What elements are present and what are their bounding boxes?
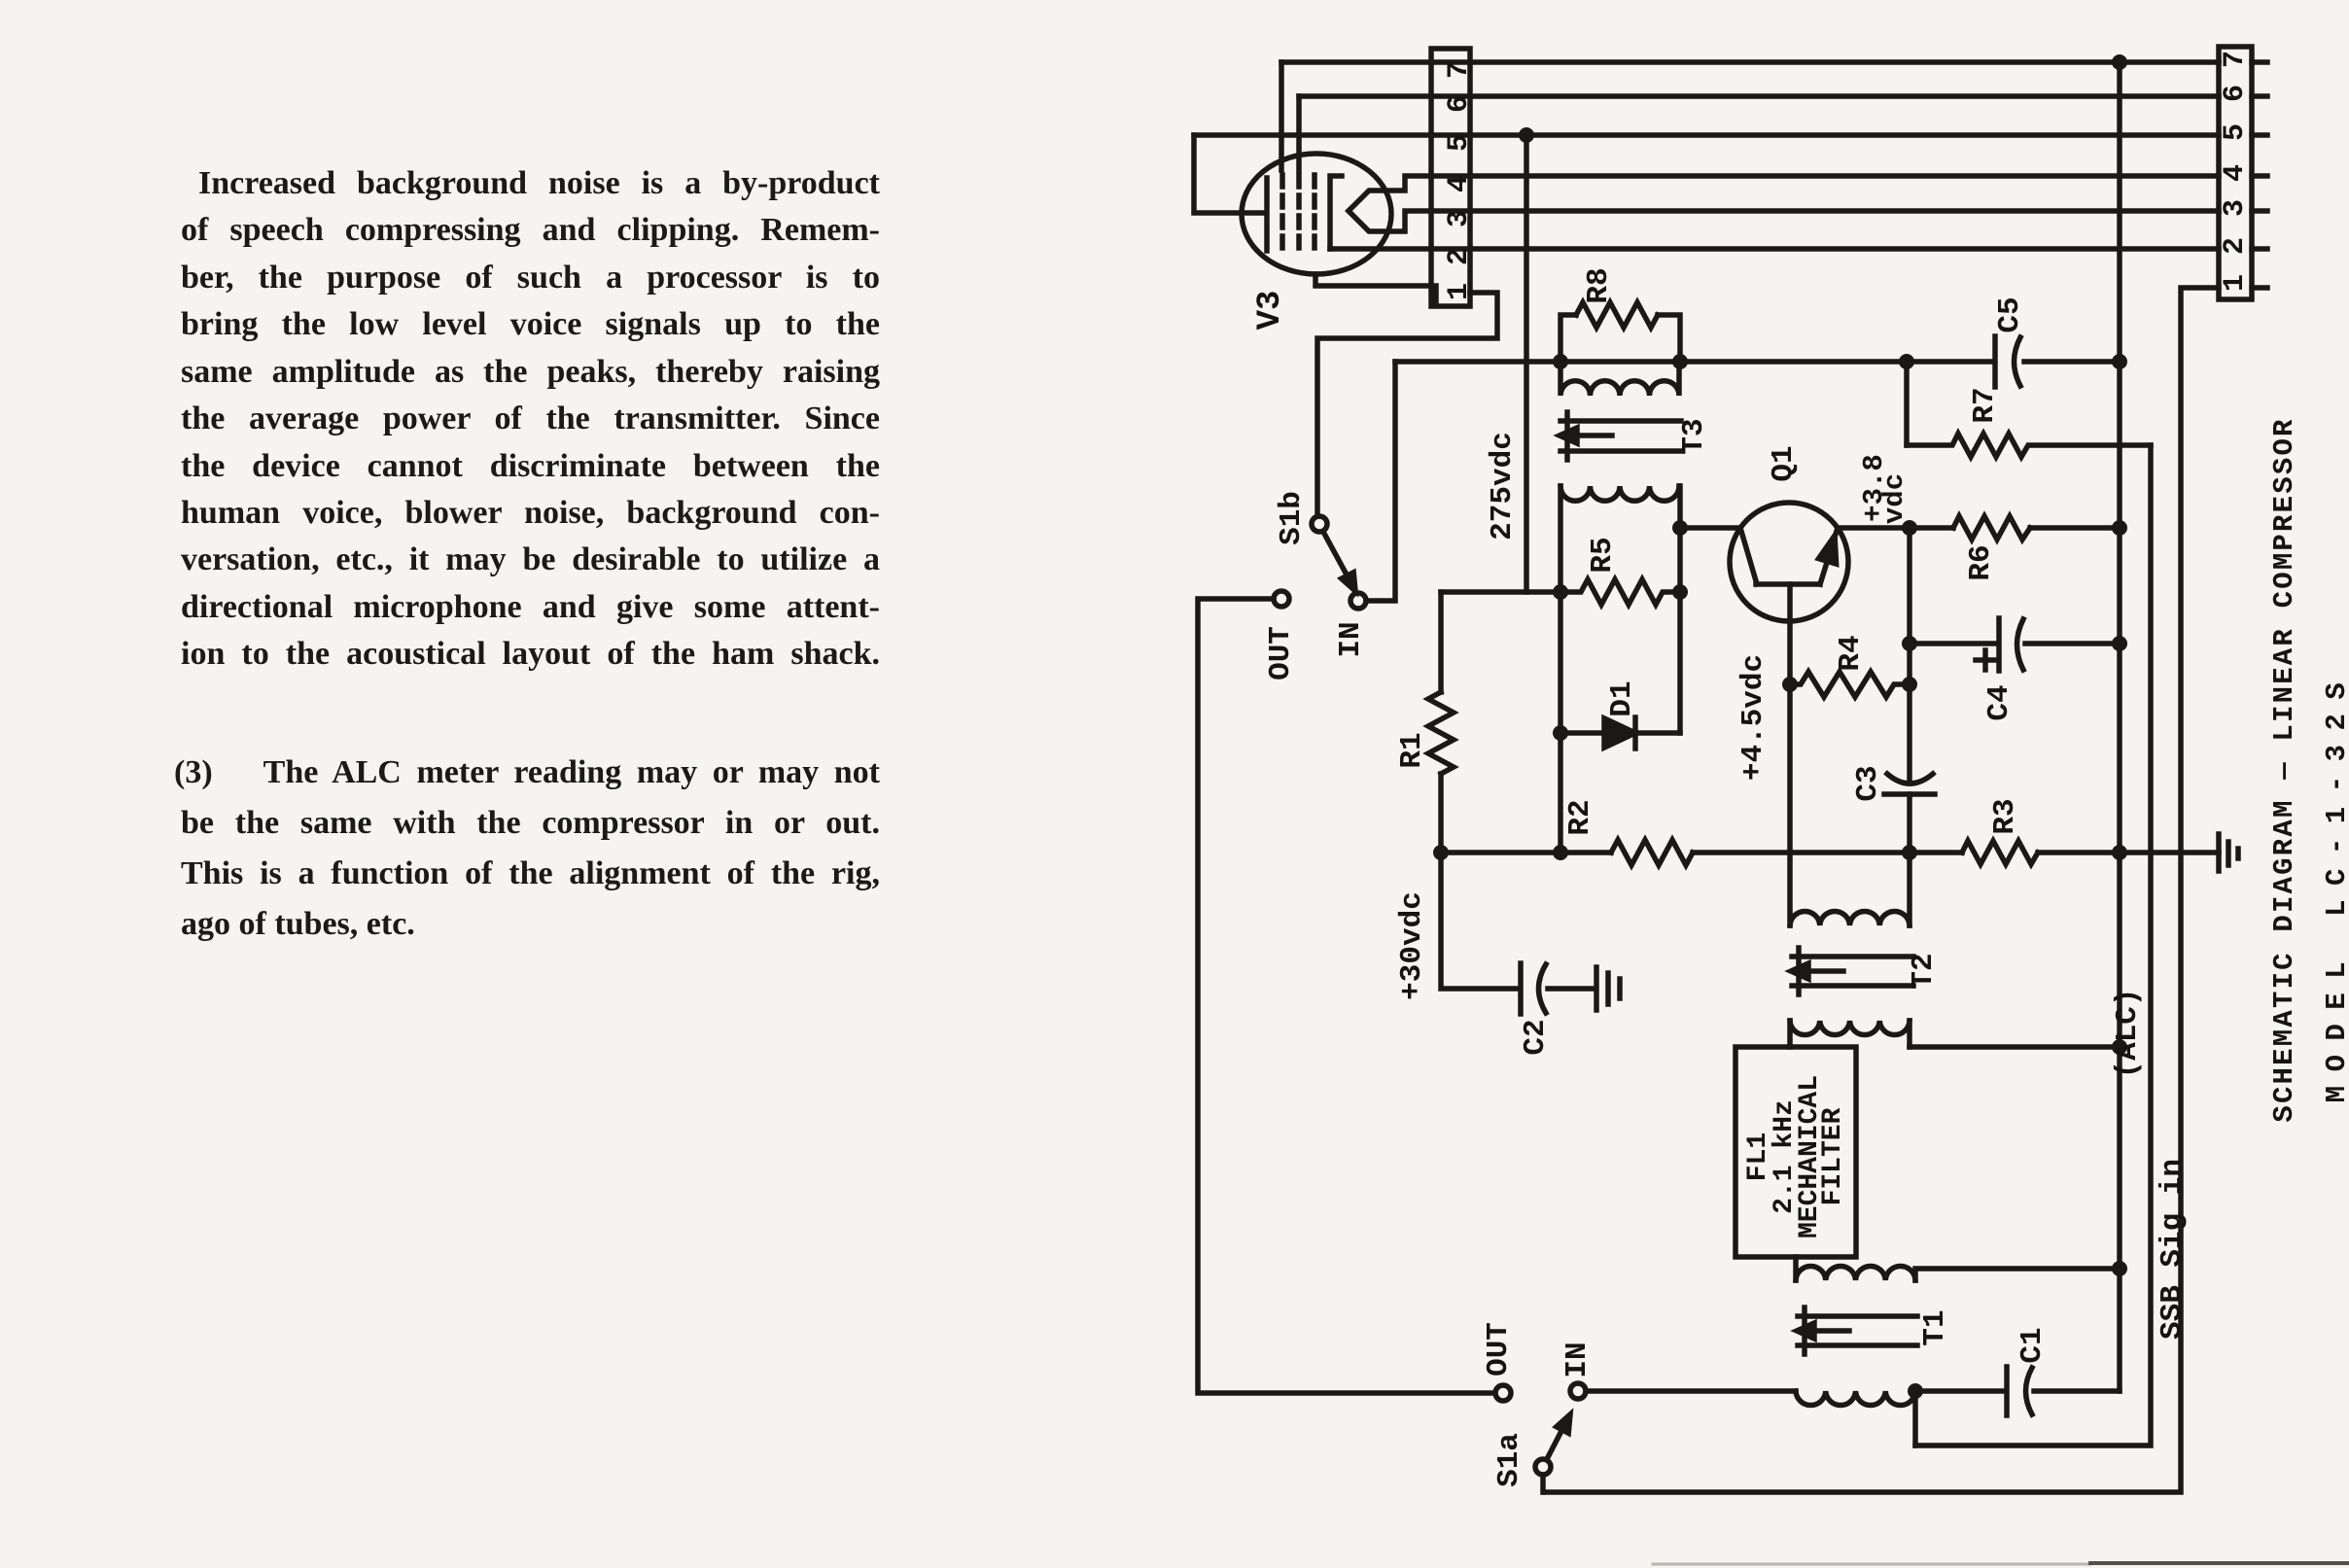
svg-text:V3: V3 bbox=[1252, 291, 1289, 331]
svg-text:C4: C4 bbox=[1982, 684, 2016, 720]
svg-text:C2: C2 bbox=[1519, 1019, 1553, 1055]
svg-text:R3: R3 bbox=[1988, 798, 2022, 834]
svg-text:4: 4 bbox=[1443, 175, 1476, 192]
svg-text:C3: C3 bbox=[1851, 765, 1885, 801]
svg-text:R5: R5 bbox=[1586, 537, 1620, 573]
svg-text:4: 4 bbox=[2219, 164, 2252, 182]
svg-text:FILTER: FILTER bbox=[1818, 1107, 1848, 1205]
svg-text:R1: R1 bbox=[1395, 732, 1429, 768]
svg-text:275vdc: 275vdc bbox=[1486, 432, 1520, 540]
svg-text:SCHEMATIC DIAGRAM — LINEAR COM: SCHEMATIC DIAGRAM — LINEAR COMPRESSOR bbox=[2268, 417, 2300, 1122]
svg-text:S1a: S1a bbox=[1492, 1433, 1526, 1487]
svg-text:Q1: Q1 bbox=[1767, 445, 1801, 481]
svg-text:3: 3 bbox=[2219, 199, 2252, 217]
svg-text:6: 6 bbox=[2219, 85, 2252, 102]
svg-text:IN: IN bbox=[1334, 621, 1368, 657]
svg-text:R7: R7 bbox=[1968, 387, 2002, 423]
svg-text:IN: IN bbox=[1560, 1342, 1595, 1377]
svg-text:5: 5 bbox=[1443, 134, 1476, 152]
svg-text:C1: C1 bbox=[2016, 1327, 2050, 1363]
svg-text:OUT: OUT bbox=[1482, 1322, 1516, 1376]
svg-text:6: 6 bbox=[1443, 95, 1476, 113]
svg-text:D1: D1 bbox=[1605, 680, 1639, 716]
svg-text:R2: R2 bbox=[1563, 799, 1597, 835]
svg-text:3: 3 bbox=[1443, 210, 1476, 227]
svg-text:2: 2 bbox=[2219, 237, 2252, 255]
svg-text:SSB Sig in: SSB Sig in bbox=[2156, 1159, 2190, 1340]
svg-text:OUT: OUT bbox=[1264, 626, 1298, 680]
svg-text:R6: R6 bbox=[1964, 544, 1998, 580]
svg-text:7: 7 bbox=[2219, 51, 2252, 68]
svg-text:1: 1 bbox=[2219, 274, 2252, 292]
svg-text:2: 2 bbox=[1443, 248, 1476, 265]
svg-text:1: 1 bbox=[1443, 283, 1476, 300]
svg-text:+4.5vdc: +4.5vdc bbox=[1736, 654, 1771, 781]
svg-text:T2: T2 bbox=[1907, 953, 1941, 989]
svg-text:+30vdc: +30vdc bbox=[1395, 891, 1429, 1000]
svg-text:vdc: vdc bbox=[1878, 473, 1911, 524]
svg-text:R4: R4 bbox=[1834, 635, 1868, 671]
svg-text:C5: C5 bbox=[1993, 296, 2027, 332]
svg-text:T3: T3 bbox=[1677, 418, 1711, 454]
svg-text:7: 7 bbox=[1443, 61, 1476, 79]
svg-text:(ALC): (ALC) bbox=[2111, 988, 2145, 1078]
svg-text:S1b: S1b bbox=[1275, 491, 1309, 545]
svg-text:T1: T1 bbox=[1918, 1309, 1952, 1345]
svg-text:MODEL LC-1-32S: MODEL LC-1-32S bbox=[2321, 669, 2349, 1103]
svg-text:R8: R8 bbox=[1582, 267, 1616, 303]
svg-text:5: 5 bbox=[2219, 123, 2252, 141]
